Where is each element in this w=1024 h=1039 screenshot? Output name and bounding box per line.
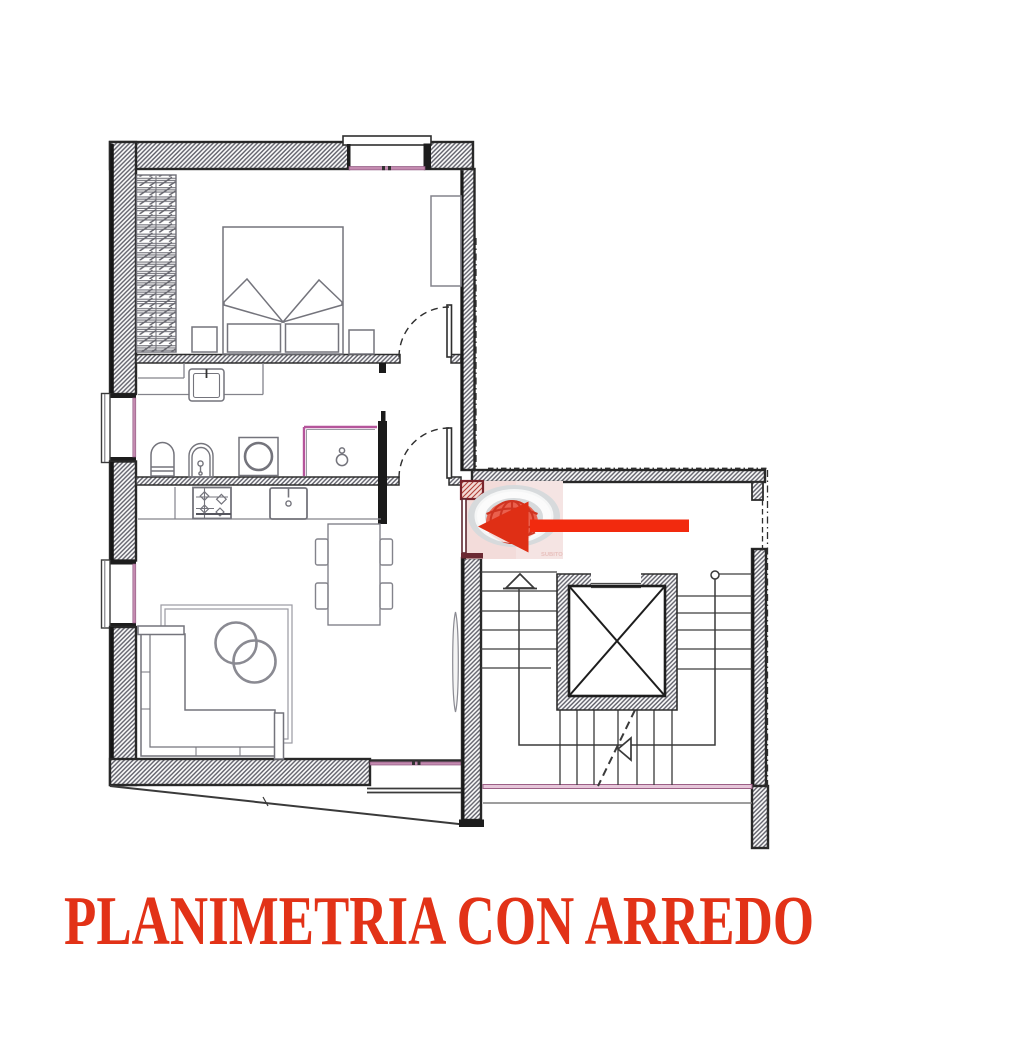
- svg-text:PLANIMETRIA CON ARREDO: PLANIMETRIA CON ARREDO: [64, 883, 814, 960]
- svg-text:SUBITO: SUBITO: [541, 552, 563, 558]
